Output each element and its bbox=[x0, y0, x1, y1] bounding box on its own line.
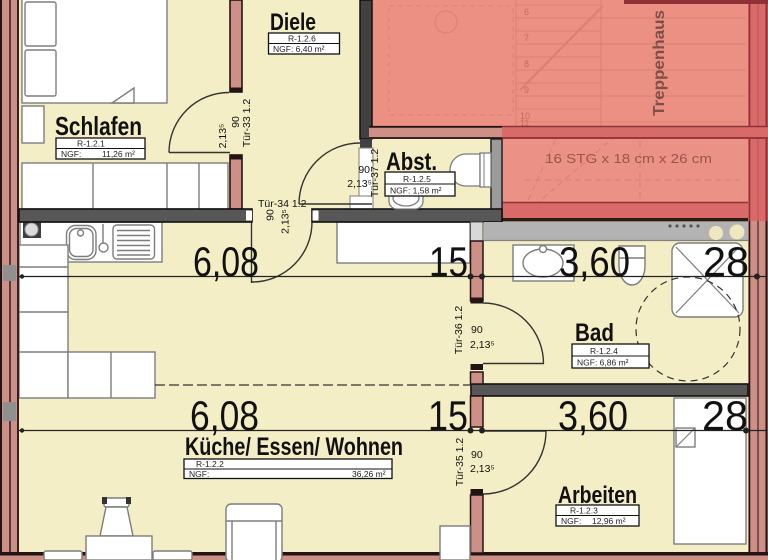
svg-text:Küche/ Essen/ Wohnen: Küche/ Essen/ Wohnen bbox=[185, 433, 403, 461]
svg-text:6,08: 6,08 bbox=[193, 238, 259, 285]
svg-text:NGF: 1,58 m²: NGF: 1,58 m² bbox=[390, 186, 442, 196]
svg-text:90: 90 bbox=[471, 324, 483, 336]
svg-text:16 STG x 18 cm x 26 cm: 16 STG x 18 cm x 26 cm bbox=[545, 152, 712, 166]
svg-text:11,26 m²: 11,26 m² bbox=[102, 149, 135, 159]
svg-text:28: 28 bbox=[703, 238, 749, 285]
svg-text:15: 15 bbox=[429, 238, 468, 285]
svg-text:36,26 m²: 36,26 m² bbox=[352, 469, 386, 479]
svg-text:Bad: Bad bbox=[575, 319, 614, 347]
svg-text:Diele: Diele bbox=[270, 9, 316, 36]
svg-text:90: 90 bbox=[471, 449, 483, 461]
svg-text:2,13⁵: 2,13⁵ bbox=[217, 124, 229, 149]
svg-text:3,60: 3,60 bbox=[559, 238, 630, 285]
svg-text:NGF:: NGF: bbox=[561, 516, 581, 526]
svg-text:NGF: 6,40 m²: NGF: 6,40 m² bbox=[273, 44, 325, 54]
svg-text:90: 90 bbox=[265, 209, 277, 221]
svg-text:Treppenhaus: Treppenhaus bbox=[651, 10, 668, 116]
svg-text:3,60: 3,60 bbox=[558, 392, 628, 439]
svg-text:R-1.2.3: R-1.2.3 bbox=[570, 506, 598, 516]
svg-text:2,13⁵: 2,13⁵ bbox=[470, 463, 495, 475]
svg-text:Tür-34 1.2: Tür-34 1.2 bbox=[258, 198, 307, 210]
svg-text:Tür-37 1.2: Tür-37 1.2 bbox=[369, 149, 381, 198]
svg-text:2,13⁵: 2,13⁵ bbox=[280, 209, 292, 234]
svg-text:2,13⁵: 2,13⁵ bbox=[470, 339, 495, 351]
svg-text:9: 9 bbox=[524, 85, 529, 95]
svg-text:R-1.2.4: R-1.2.4 bbox=[590, 346, 618, 356]
svg-text:R-1.2.6: R-1.2.6 bbox=[288, 34, 316, 44]
svg-text:NGF:: NGF: bbox=[189, 469, 209, 479]
svg-text:R-1.2.5: R-1.2.5 bbox=[403, 174, 431, 184]
svg-text:6,08: 6,08 bbox=[190, 392, 259, 439]
svg-text:8: 8 bbox=[524, 59, 529, 69]
svg-text:7: 7 bbox=[524, 33, 529, 43]
svg-text:Tür-36 1.2: Tür-36 1.2 bbox=[453, 306, 465, 355]
svg-text:R-1.2.2: R-1.2.2 bbox=[196, 459, 224, 469]
svg-text:28: 28 bbox=[702, 392, 748, 439]
svg-text:NGF: 6,86 m²: NGF: 6,86 m² bbox=[577, 358, 629, 368]
svg-text:Tür-35 1.2: Tür-35 1.2 bbox=[454, 438, 466, 487]
svg-text:Schlafen: Schlafen bbox=[55, 111, 142, 141]
svg-text:6: 6 bbox=[524, 7, 529, 17]
svg-text:R-1.2.1: R-1.2.1 bbox=[77, 139, 105, 149]
svg-text:12,96 m²: 12,96 m² bbox=[592, 516, 626, 526]
svg-text:Tür-33 1.2: Tür-33 1.2 bbox=[241, 99, 253, 148]
svg-text:NGF:: NGF: bbox=[61, 149, 81, 159]
svg-text:15: 15 bbox=[428, 392, 468, 439]
